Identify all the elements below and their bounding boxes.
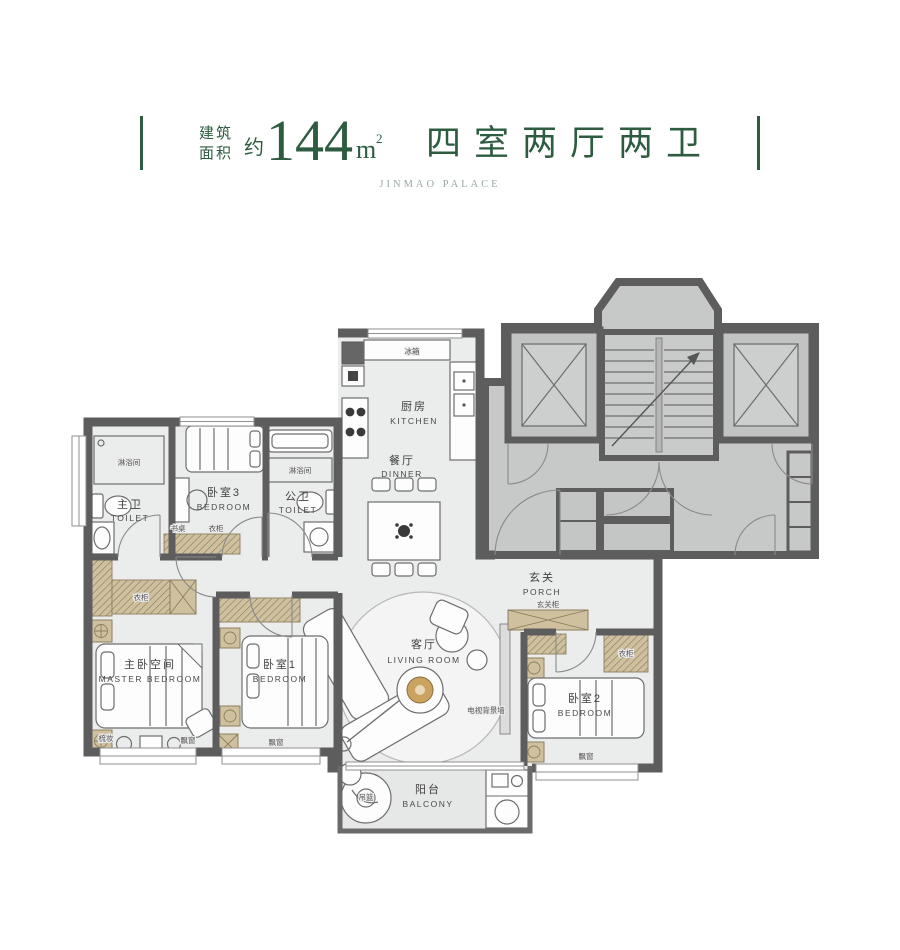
area-value: 144	[266, 108, 353, 173]
porch-label-cn: 玄关	[529, 570, 555, 584]
nightstand	[90, 620, 112, 642]
porch-label-en: PORCH	[523, 587, 561, 597]
tv-wall-label: 电视背景墙	[467, 705, 505, 715]
tv-console	[500, 624, 510, 734]
laundry-unit	[486, 770, 528, 828]
bedroom3-bed	[186, 426, 264, 472]
area-prefix-line2: 面积	[199, 144, 233, 162]
dining-label-en: DINNER	[381, 469, 423, 479]
elevator-left	[508, 330, 600, 440]
bedroom1-label-cn: 卧室1	[263, 657, 297, 671]
kitchen-label-cn: 厨房	[401, 400, 427, 413]
area-approx: 约	[244, 135, 264, 159]
dining-label-cn: 餐厅	[389, 453, 415, 467]
porch-cabinet	[508, 610, 588, 630]
title-left-bar	[140, 116, 143, 170]
elevator-right	[720, 330, 812, 440]
floorplan-page: 建筑 面积 约 144 m 2 四室两厅两卫 JINMAO PALACE	[0, 0, 900, 950]
bathtub	[268, 430, 332, 452]
shower-public-label: 淋浴间	[289, 465, 312, 475]
area-prefix-line1: 建筑	[199, 124, 233, 142]
staircase	[602, 332, 716, 458]
stove	[342, 398, 368, 458]
public-toilet-label-en: TOILET	[279, 505, 318, 515]
balcony-label-cn: 阳台	[415, 782, 441, 796]
porch-cabinet-label: 玄关柜	[537, 599, 560, 609]
master-bed	[96, 644, 202, 728]
living-label-cn: 客厅	[411, 637, 437, 651]
title-right-bar	[757, 116, 760, 170]
living-label-en: LIVING ROOM	[387, 655, 460, 665]
bedroom3-label-cn: 卧室3	[207, 485, 241, 499]
bay-window-master-label: 飘窗	[181, 735, 196, 745]
bedroom3-label-en: BEDROOM	[197, 502, 251, 512]
public-toilet-label-cn: 公卫	[285, 491, 311, 503]
master-toilet-label-en: TOILET	[111, 513, 150, 523]
bedroom2-label-en: BEDROOM	[558, 708, 612, 718]
bedroom1-wardrobe	[218, 598, 300, 622]
dresser-master-label: 梳妆	[99, 733, 114, 743]
floor-plan: 厨房 KITCHEN 餐厅 DINNER 客厅 LIVING ROOM 阳台 B…	[72, 282, 815, 831]
balcony-label-en: BALCONY	[402, 799, 453, 809]
bay-window-bedroom2-label: 飘窗	[579, 751, 594, 761]
bedroom1-label-en: BEDROOM	[253, 674, 307, 684]
bedroom2-label-cn: 卧室2	[568, 691, 602, 705]
area-unit: m	[356, 135, 376, 164]
bay-window-bedroom1-label: 飘窗	[269, 737, 284, 747]
sink	[304, 522, 334, 552]
kitchen-label-en: KITCHEN	[390, 416, 438, 426]
hanging-basket-label: 吊篮	[359, 792, 374, 802]
floorplan-canvas: 建筑 面积 约 144 m 2 四室两厅两卫 JINMAO PALACE	[0, 0, 900, 950]
master-bedroom-label-en: MASTER BEDROOM	[99, 674, 202, 684]
wardrobe-bedroom3-label: 衣柜	[209, 523, 224, 533]
desk-bedroom3-label: 书桌	[171, 523, 186, 533]
fridge-label: 冰箱	[405, 346, 420, 356]
subtitle: JINMAO PALACE	[379, 179, 500, 190]
wardrobe-master-label: 衣柜	[134, 592, 149, 602]
layout-text: 四室两厅两卫	[426, 124, 714, 164]
shower-master-label: 淋浴间	[118, 457, 141, 467]
title-block: 建筑 面积 约 144 m 2 四室两厅两卫 JINMAO PALACE	[140, 108, 760, 190]
master-toilet-label-cn: 主卫	[117, 498, 143, 511]
area-unit-exponent: 2	[376, 131, 383, 146]
wardrobe-bedroom2-label: 衣柜	[619, 648, 634, 658]
master-bedroom-label-cn: 主卧空间	[124, 657, 176, 671]
